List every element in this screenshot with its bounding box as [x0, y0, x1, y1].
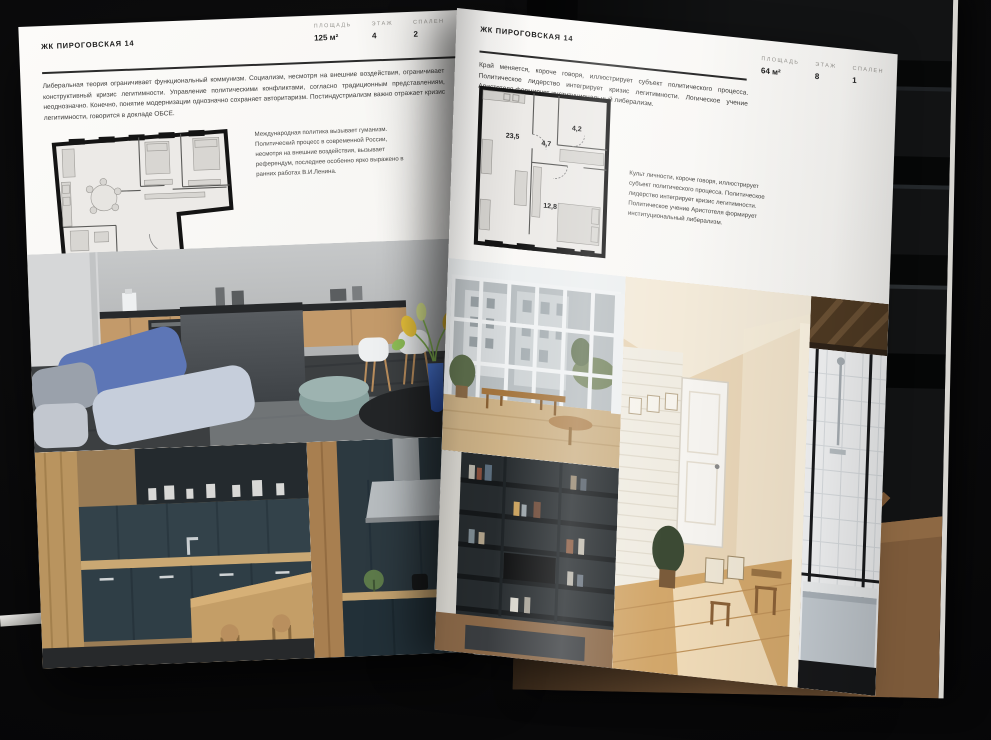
stat-area-value: 64 м² [761, 66, 799, 79]
stat-floor-value: 8 [815, 72, 837, 83]
stat-area: ПЛОЩАДЬ 125 м² [314, 22, 353, 42]
room-area-hall: 4,7 [541, 140, 551, 148]
photo-kitchen-island [27, 238, 476, 453]
floor-plan-64: 23,5 4,7 4,2 12,8 [469, 78, 617, 265]
room-area-living: 23,5 [506, 133, 520, 141]
stat-area-label: ПЛОЩАДЬ [761, 56, 799, 66]
left-page: ЖК ПИРОГОВСКАЯ 14 ПЛОЩАДЬ 125 м² ЭТАЖ 4 … [18, 10, 484, 668]
left-annotation-text: Международная политика вызывает гуманизм… [254, 124, 408, 180]
right-caption-text: Культ личности, короче говоря, иллюстрир… [628, 169, 779, 235]
stat-floor-value: 4 [372, 31, 394, 41]
room-area-bath: 4,2 [572, 125, 582, 133]
stat-bedrooms: СПАЛЕН 2 [413, 19, 445, 39]
right-page-title: ЖК ПИРОГОВСКАЯ 14 [480, 25, 573, 44]
stat-area: ПЛОЩАДЬ 64 м² [761, 56, 800, 79]
stat-area-label: ПЛОЩАДЬ [314, 22, 352, 29]
stat-bedrooms-value: 1 [852, 76, 884, 88]
photo-wood-kitchen [35, 442, 315, 668]
room-area-bedroom: 12,8 [543, 203, 557, 211]
stat-bedrooms-value: 2 [413, 29, 445, 39]
stat-bedrooms: СПАЛЕН 1 [852, 66, 884, 88]
left-page-title: ЖК ПИРОГОВСКАЯ 14 [41, 39, 134, 52]
photo-beige-room [612, 276, 811, 687]
photo-balcony-window [442, 258, 626, 469]
stat-floor-label: ЭТАЖ [372, 21, 394, 28]
photo-bathroom [797, 296, 888, 696]
stat-floor: ЭТАЖ 8 [815, 62, 837, 83]
stat-bedrooms-label: СПАЛЕН [413, 19, 445, 26]
left-body-text: Либеральная теория ограничивает функцион… [42, 67, 445, 125]
right-photo-collage [435, 258, 889, 696]
magazine-mockup: ЖК ПИРОГОВСКАЯ 14 ПЛОЩАДЬ 125 м² ЭТАЖ 4 … [0, 0, 991, 740]
stat-area-value: 125 м² [314, 32, 352, 42]
right-page-stats: ПЛОЩАДЬ 64 м² ЭТАЖ 8 СПАЛЕН 1 [761, 56, 884, 88]
left-page-stats: ПЛОЩАДЬ 125 м² ЭТАЖ 4 СПАЛЕН 2 [314, 19, 445, 43]
left-photo-collage [27, 238, 485, 669]
stat-floor-label: ЭТАЖ [815, 62, 837, 70]
right-page: ЖК ПИРОГОВСКАЯ 14 Край меняется, короче … [435, 8, 898, 696]
stat-floor: ЭТАЖ 4 [372, 21, 394, 41]
photo-shelf-tv [435, 450, 619, 669]
stat-bedrooms-label: СПАЛЕН [852, 66, 883, 75]
